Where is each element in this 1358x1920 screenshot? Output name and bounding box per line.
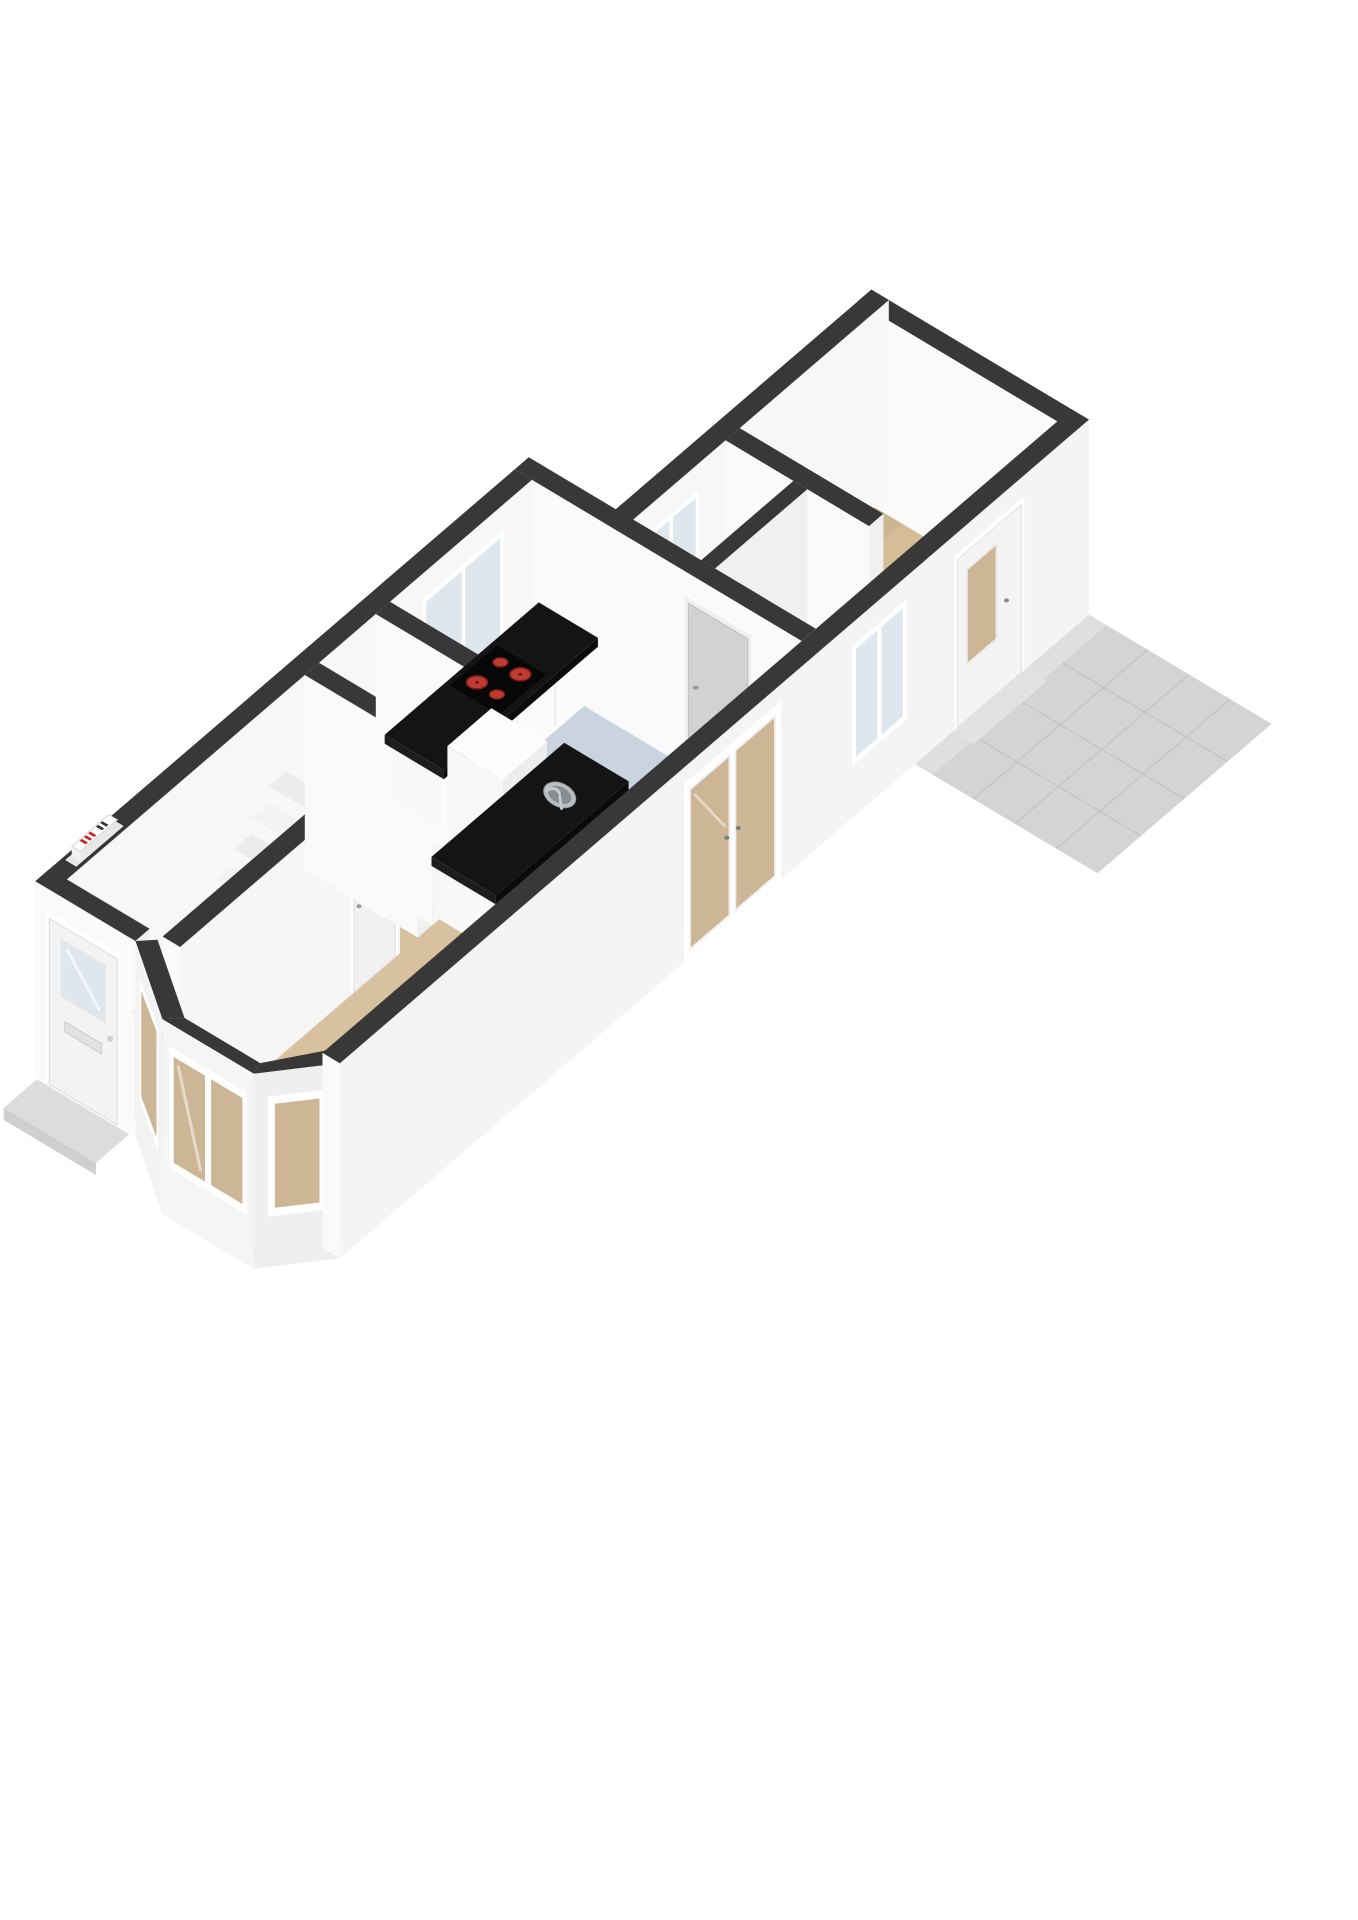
burner-center	[475, 681, 479, 683]
burner-center	[518, 673, 522, 675]
french-door-glass	[735, 716, 775, 910]
kitchen-door-handle	[693, 686, 699, 690]
french-door-handle	[724, 836, 729, 840]
french-door-glass	[690, 755, 730, 949]
cupboard-door-handle	[357, 904, 362, 908]
window-mullion	[877, 627, 881, 739]
bay-window-right-glass	[275, 1099, 320, 1208]
bay-window-front-right-glass	[211, 1079, 242, 1204]
back-door-handle	[1004, 598, 1009, 602]
floorplan-3d-render	[0, 0, 1358, 1920]
front-door-knob	[107, 1036, 113, 1042]
burner	[490, 690, 505, 699]
french-door-handle	[736, 826, 741, 830]
right-wall-face	[323, 1053, 340, 1258]
floorplan-stage	[0, 0, 1358, 1920]
burner	[493, 658, 508, 667]
